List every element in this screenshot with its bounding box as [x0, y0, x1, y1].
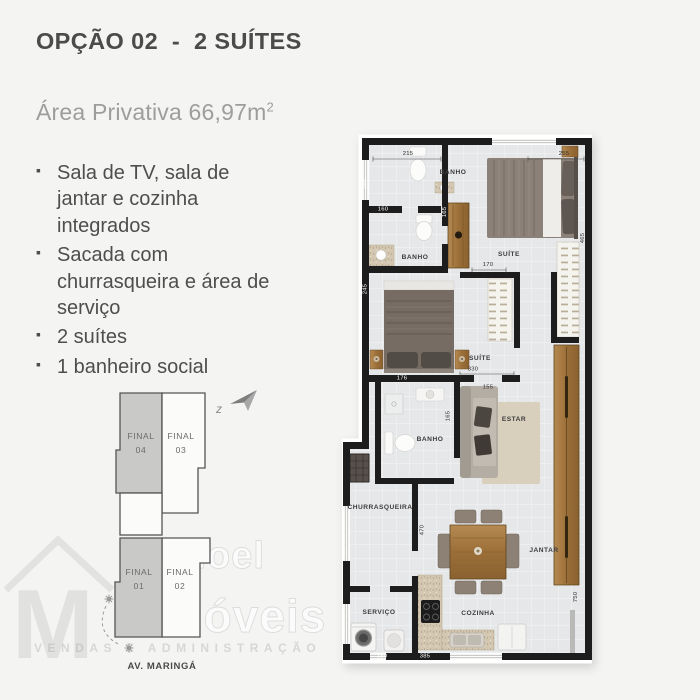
room-label-estar: ESTAR — [502, 416, 526, 423]
dim-160: 160 — [378, 207, 389, 213]
stair-core-block — [120, 493, 162, 535]
feature-item: Sacada com churrasqueira e área de servi… — [36, 242, 282, 321]
feature-item: Sala de TV, sala de jantar e cozinha int… — [36, 160, 282, 239]
suite1-bed — [487, 146, 578, 239]
room-label-suite-1: SUÍTE — [498, 249, 520, 258]
feature-list: Sala de TV, sala de jantar e cozinha int… — [36, 160, 282, 383]
feature-item: 2 suítes — [36, 324, 282, 350]
compass-letter: z — [215, 402, 222, 416]
dim-245: 245 — [363, 283, 369, 294]
dim-176: 176 — [397, 376, 408, 382]
estar-sofa — [460, 386, 498, 478]
unit-label: FINAL — [166, 567, 193, 577]
window — [343, 604, 350, 644]
feature-item: 1 banheiro social — [36, 354, 282, 380]
window — [492, 138, 556, 145]
private-area-label: Área Privativa 66,97m2 — [36, 99, 274, 126]
dim-215: 215 — [403, 151, 414, 157]
key-plan: FINAL 04 FINAL 03 FINAL 01 FINAL 02 z AV… — [70, 378, 270, 678]
area-text: Área Privativa 66,97m — [36, 99, 266, 125]
room-label-banho-3: BANHO — [417, 436, 444, 443]
dim-165-bath: 165 — [442, 206, 448, 217]
dim-385: 385 — [420, 654, 431, 660]
room-label-banho-2: BANHO — [402, 254, 429, 261]
dim-155: 155 — [483, 385, 494, 391]
street-label: AV. MARINGÁ — [128, 661, 197, 672]
window — [450, 653, 502, 660]
unit-number: 02 — [175, 581, 186, 591]
unit-label: FINAL — [127, 431, 154, 441]
room-label-suite-2: SUÍTE — [469, 353, 491, 362]
unit-block-final-04 — [116, 393, 162, 493]
page-title: OPÇÃO 02 - 2 SUÍTES — [36, 28, 302, 55]
unit-label: FINAL — [125, 567, 152, 577]
dim-330: 330 — [468, 367, 479, 373]
suite1-closet — [557, 242, 579, 337]
dim-165-left: 165 — [363, 178, 369, 189]
north-compass-icon: z — [215, 390, 257, 416]
dim-170: 170 — [483, 262, 494, 268]
unit-number: 04 — [136, 445, 147, 455]
dim-465: 465 — [580, 232, 586, 243]
room-label-banho-1: BANHO — [440, 169, 467, 176]
room-label-cozinha: COZINHA — [461, 610, 495, 617]
page: { "page": {"background": "#f4f4f2"}, "he… — [0, 0, 700, 700]
room-label-servico: SERVIÇO — [362, 609, 395, 616]
churrasqueira-grill — [350, 454, 369, 482]
unit-number: 01 — [134, 581, 145, 591]
dim-150: 150 — [377, 654, 388, 660]
window — [343, 506, 350, 561]
dim-165-bath3: 165 — [446, 410, 452, 421]
dim-255: 255 — [559, 151, 570, 157]
floor-plan: 215 255 165 165 160 170 465 245 330 176 … — [342, 126, 592, 666]
suite1-wardrobe — [448, 203, 469, 268]
unit-number: 03 — [176, 445, 187, 455]
unit-label: FINAL — [167, 431, 194, 441]
room-label-jantar: JANTAR — [529, 547, 558, 554]
dim-750: 750 — [573, 591, 579, 602]
room-label-churrasqueira: CHURRASQUEIRA — [347, 504, 412, 511]
area-exponent: 2 — [266, 99, 273, 114]
unit-block-final-02 — [162, 538, 210, 637]
suite2-closet — [488, 279, 512, 341]
dim-470: 470 — [420, 524, 426, 535]
